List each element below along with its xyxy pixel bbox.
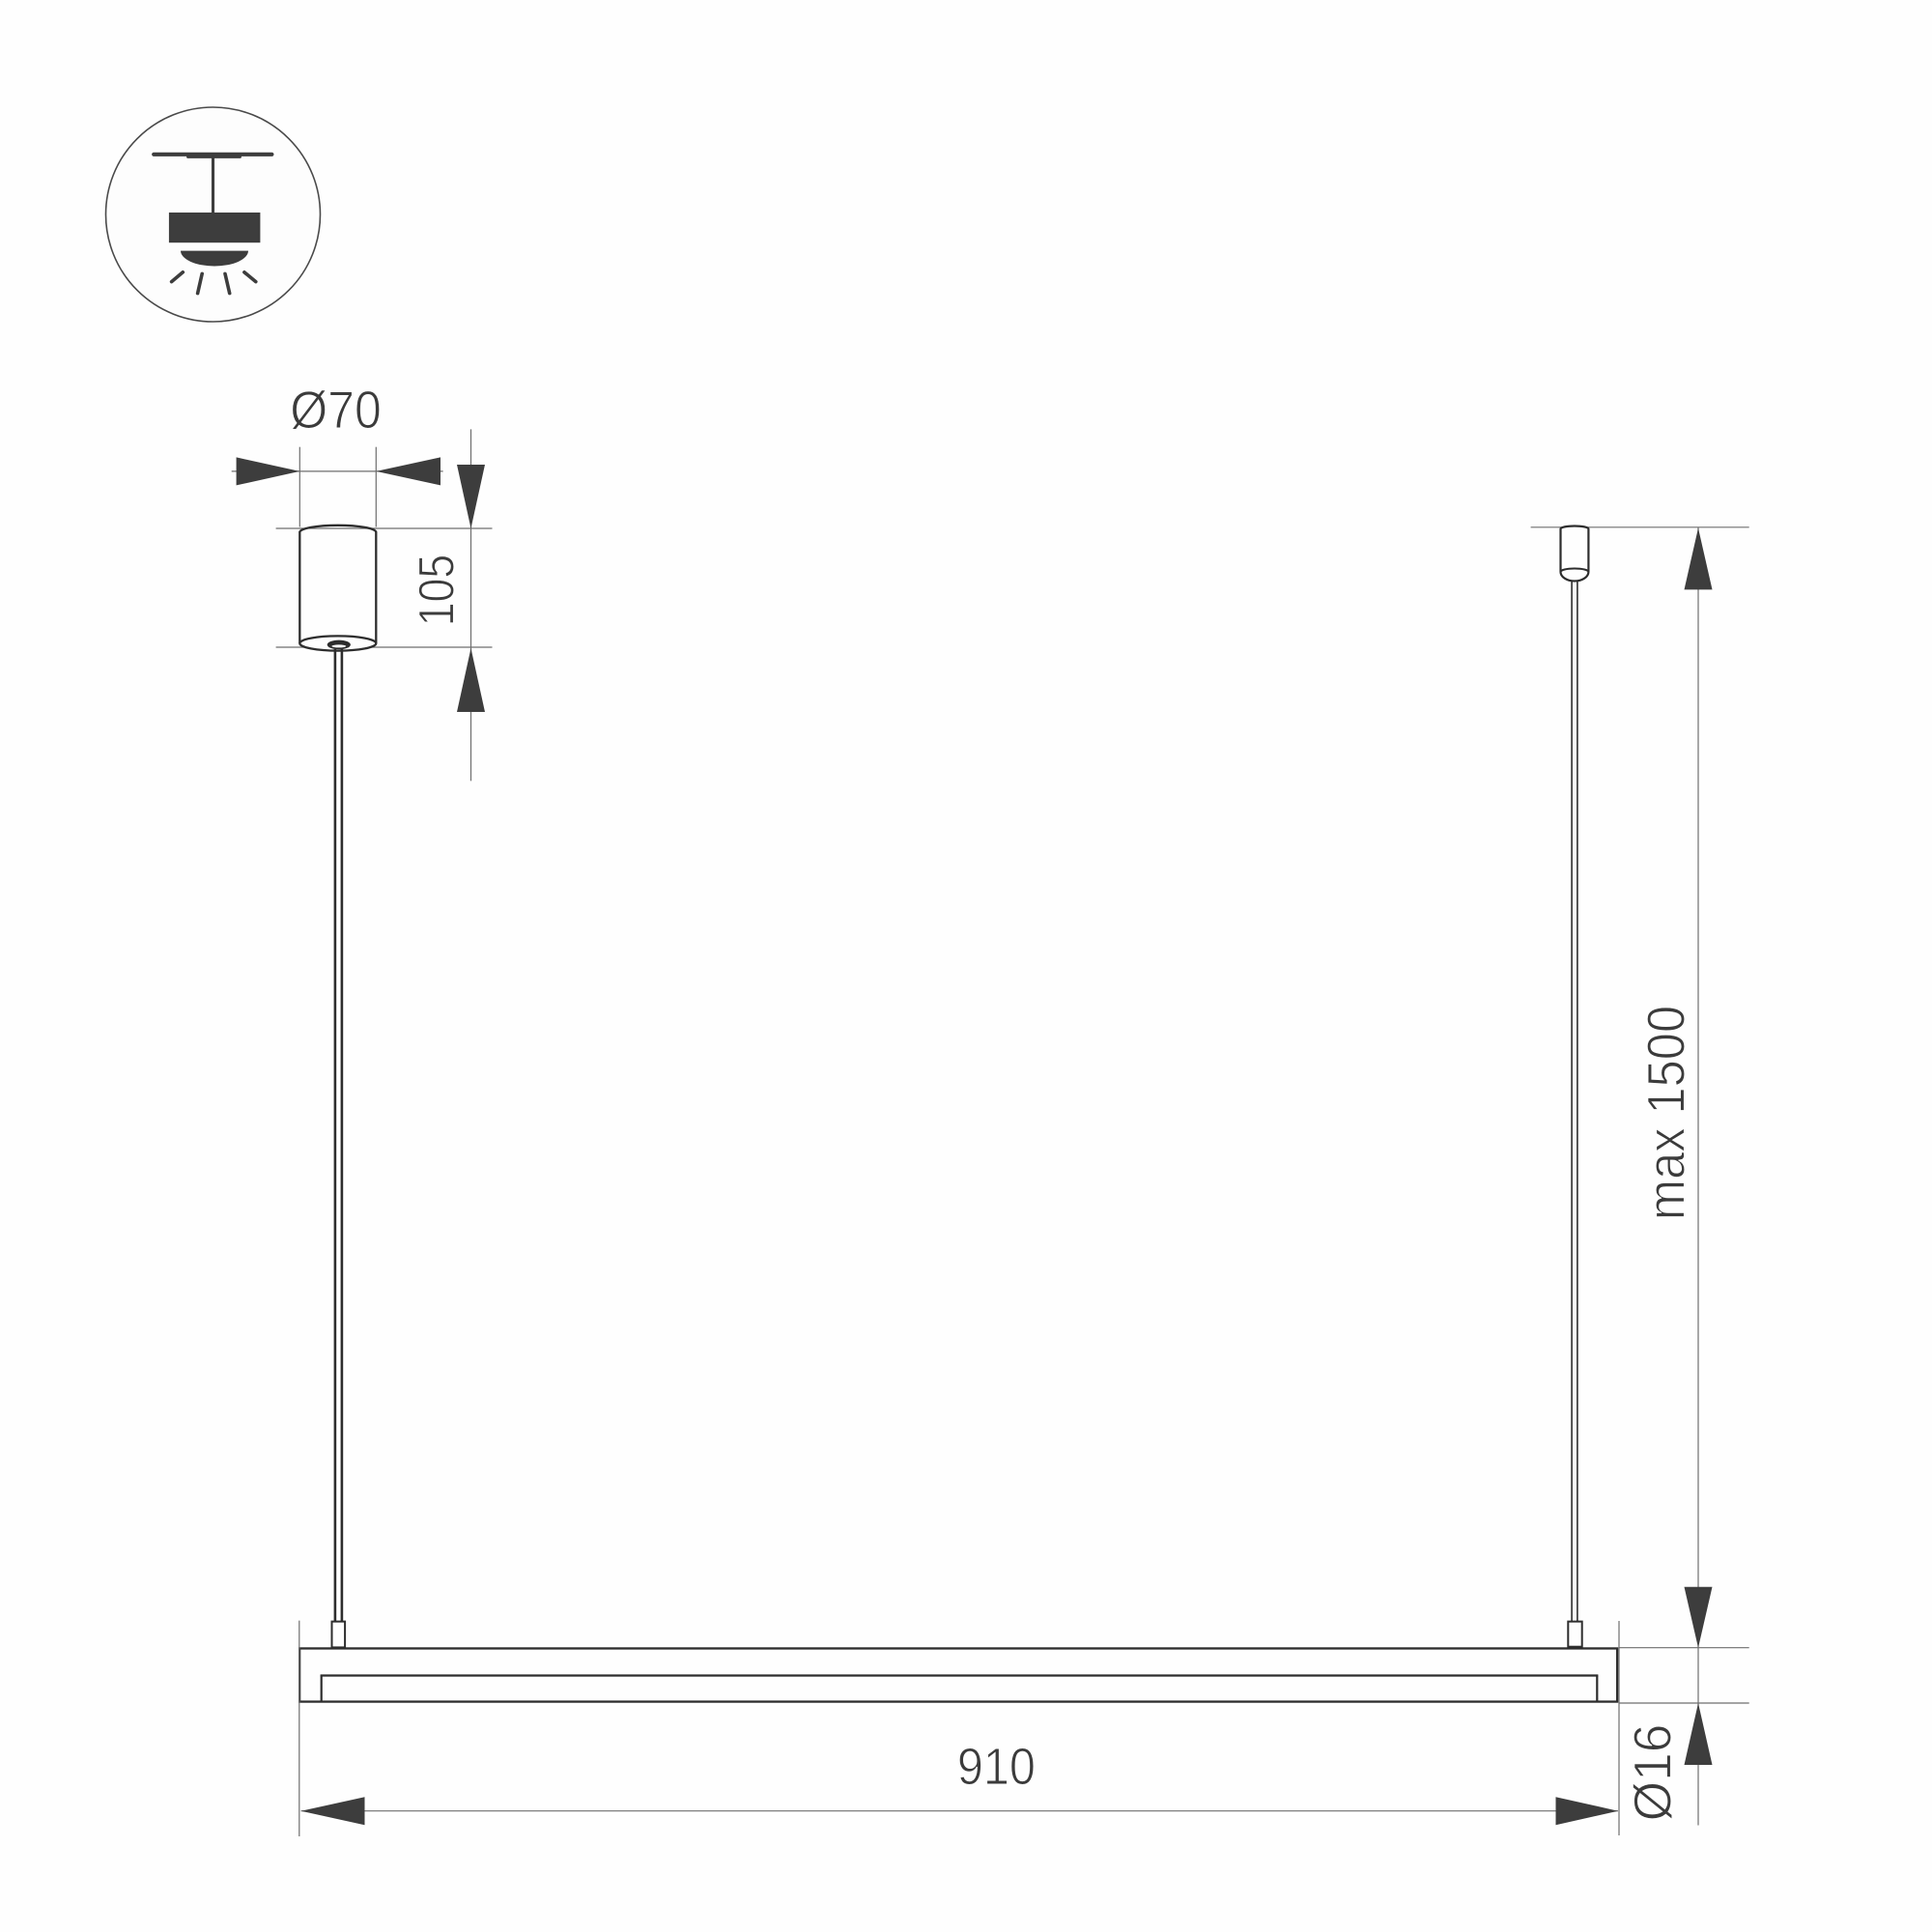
svg-text:max 1500: max 1500 [1637, 1006, 1696, 1220]
svg-text:Ø70: Ø70 [290, 381, 382, 440]
svg-text:105: 105 [410, 554, 466, 627]
svg-text:910: 910 [957, 1737, 1036, 1796]
svg-text:Ø16: Ø16 [1624, 1724, 1683, 1822]
